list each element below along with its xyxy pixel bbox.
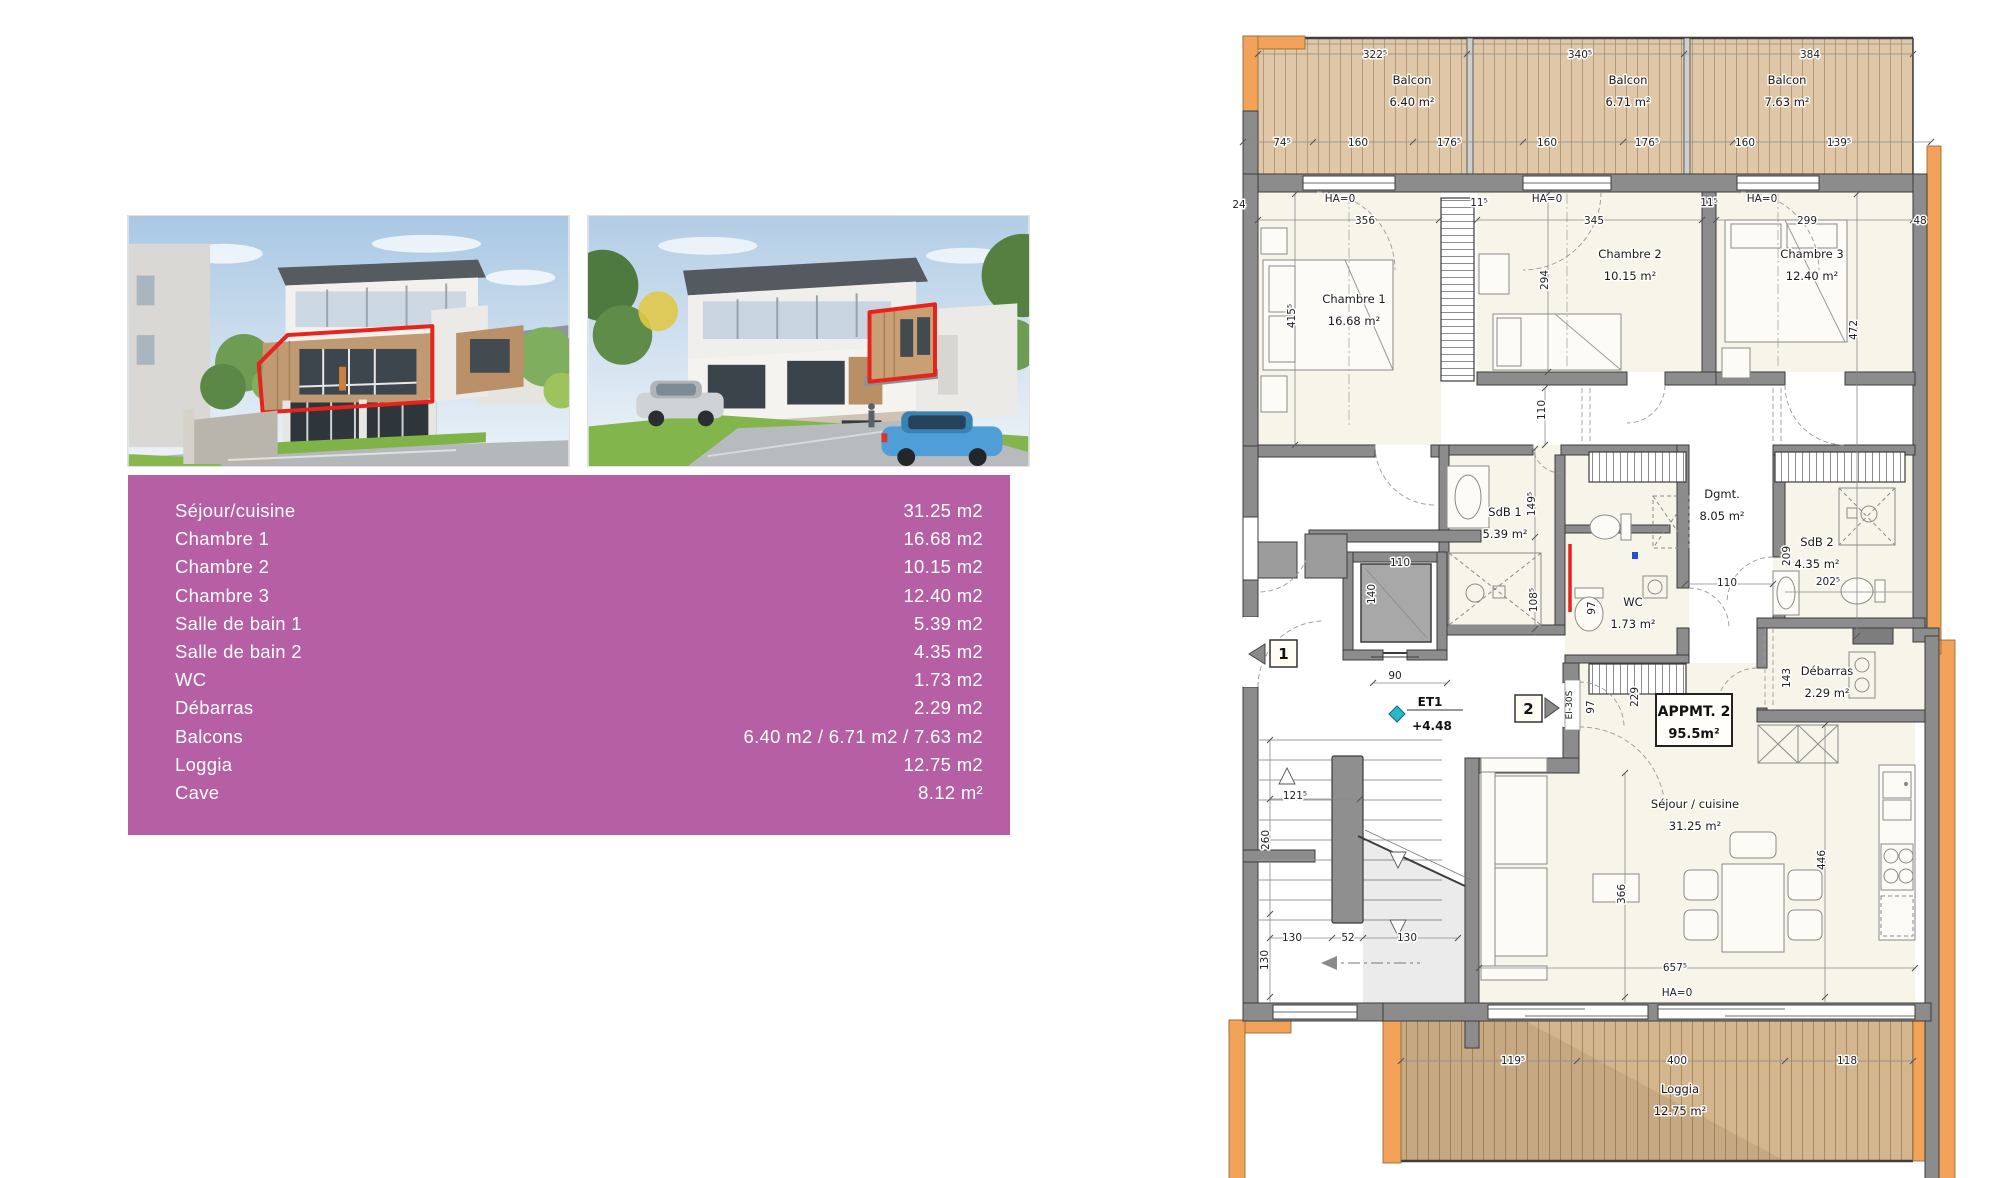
exterior-render-front-art [128,216,569,466]
dimension-label: 149⁵ [1526,492,1538,516]
elevator [1361,564,1431,657]
unit-2-arrow-icon [1545,698,1559,718]
dimension-label: 400 [1667,1055,1687,1067]
room-name: Chambre 1 [1322,292,1385,306]
dimension-label: 229 [1629,687,1641,707]
exterior-render-side-art [588,216,1029,466]
dimension-label: HA=0 [1325,193,1356,205]
dimension-label: 260 [1260,830,1272,850]
room-area-value: 12.40 m2 [903,585,1010,607]
level-marker-label: ET1 [1418,695,1443,709]
dimension-label: 294 [1539,270,1551,290]
table-row: WC1.73 m2 [128,666,1010,694]
dimension-label: 209 [1781,546,1793,566]
room-area-value: 2.29 m2 [914,697,1010,719]
dimension-label: 384 [1800,49,1820,61]
table-row: Cave8.12 m² [128,779,1010,807]
room-area-value: 12.75 m2 [903,754,1010,776]
table-row: Salle de bain 15.39 m2 [128,610,1010,638]
room-area-value: 31.25 m2 [903,500,1010,522]
dimension-label: 110 [1390,557,1410,569]
room-area: 5.39 m² [1482,527,1527,541]
room-label: Séjour/cuisine [128,500,295,522]
dimension-label: 118 [1837,1055,1857,1067]
room-label: Balcons [128,726,243,748]
table-row: Loggia12.75 m2 [128,751,1010,779]
room-area: 4.35 m² [1794,557,1839,571]
dimension-label: 140 [1366,584,1378,604]
room-area: 16.68 m² [1328,314,1380,328]
dimension-label: 130 [1259,950,1271,970]
room-area-value: 1.73 m2 [914,669,1010,691]
table-row: Balcons6.40 m2 / 6.71 m2 / 7.63 m2 [128,723,1010,751]
dimension-label: 52 [1341,932,1354,944]
room-name: Chambre 3 [1780,247,1843,261]
room-area-table: Séjour/cuisine31.25 m2Chambre 116.68 m2C… [128,475,1010,835]
room-label: Cave [128,782,219,804]
dimension-label: 143 [1781,668,1793,688]
dimension-label: 176⁵ [1437,137,1461,149]
stairs [1258,740,1471,1003]
dimension-label: HA=0 [1532,193,1563,205]
dimension-label: 97 [1586,601,1598,614]
unit-2-label: 2 [1523,700,1533,718]
exterior-render-side [587,215,1030,467]
room-area: 12.40 m² [1786,269,1838,283]
room-area-value: 6.40 m2 / 6.71 m2 / 7.63 m2 [744,726,1010,748]
balcony-divider [1467,38,1473,174]
apartment-label: APPMT. 2 95.5m² [1656,694,1732,746]
dimension-label: 121⁵ [1283,790,1307,802]
room-area: 31.25 m² [1669,819,1721,833]
dimension-label: 90 [1388,670,1401,682]
room-area: 12.75 m² [1654,1104,1706,1118]
room-area: 10.15 m² [1604,269,1656,283]
room-area-value: 16.68 m2 [903,528,1010,550]
dimension-label: 11⁵ [1700,197,1718,209]
balcony-divider [1684,38,1690,174]
table-row: Séjour/cuisine31.25 m2 [128,497,1010,525]
room-name: Débarras [1801,664,1854,678]
apartment-area: 95.5m² [1668,727,1719,742]
dimension-label: 345 [1584,215,1604,227]
dimension-label: 108⁵ [1528,588,1540,612]
room-area: 7.63 m² [1764,95,1809,109]
room-name: WC [1623,595,1642,609]
dimension-label: 202⁵ [1816,576,1840,588]
dimension-label: HA=0 [1662,987,1693,999]
dimension-label: 340⁵ [1568,49,1592,61]
floor-plan-drawing: APPMT. 2 95.5m² ET1 +4.48 1 2 EI-30S 322… [1225,8,1995,1178]
dimension-label: HA=0 [1747,193,1778,205]
dimension-label: 415⁵ [1286,304,1298,328]
fire-door-label: EI-30S [1565,690,1575,719]
dimension-label: 24 [1232,199,1246,211]
room-area: 1.73 m² [1610,617,1655,631]
room-name: Séjour / cuisine [1651,797,1739,811]
room-area-value: 8.12 m² [918,782,1010,804]
room-area-value: 5.39 m2 [914,613,1010,635]
table-row: Chambre 312.40 m2 [128,582,1010,610]
room-label: Loggia [128,754,232,776]
floor-plan: APPMT. 2 95.5m² ET1 +4.48 1 2 EI-30S 322… [1225,8,1995,1178]
room-name: Chambre 2 [1598,247,1661,261]
dimension-label: 97 [1585,700,1597,713]
room-name: Loggia [1661,1082,1699,1096]
dimension-label: 48 [1913,215,1926,227]
room-label: Salle de bain 2 [128,641,302,663]
level-marker-value: +4.48 [1412,719,1452,733]
table-row: Débarras2.29 m2 [128,694,1010,722]
room-name: SdB 2 [1800,535,1833,549]
dimension-label: 366 [1616,884,1628,904]
dimension-label: 11⁵ [1470,197,1488,209]
dimension-label: 446 [1816,850,1828,870]
dimension-label: 110 [1536,400,1548,420]
unit-marker-2: 2 EI-30S [1515,680,1580,730]
level-marker: ET1 +4.48 [1389,695,1463,733]
room-label: WC [128,669,206,691]
room-label: Chambre 3 [128,585,269,607]
dimension-label: 322⁵ [1363,49,1387,61]
room-label: Chambre 2 [128,556,269,578]
room-name: SdB 1 [1488,505,1521,519]
room-label: Chambre 1 [128,528,269,550]
dimension-label: 139⁵ [1827,137,1851,149]
room-label: Débarras [128,697,254,719]
exterior-render-front [127,215,570,467]
room-label: Salle de bain 1 [128,613,302,635]
dimension-label: 119⁵ [1501,1055,1525,1067]
dimension-label: 657⁵ [1663,962,1687,974]
room-area: 6.71 m² [1605,95,1650,109]
room-name: Balcon [1609,73,1648,87]
dimension-label: 130 [1397,932,1417,944]
room-area-value: 10.15 m2 [903,556,1010,578]
level-marker-icon [1389,706,1405,722]
dimension-label: 472 [1848,320,1860,340]
room-area: 8.05 m² [1699,509,1744,523]
room-name: Balcon [1768,73,1807,87]
table-row: Chambre 210.15 m2 [128,553,1010,581]
blue-annotation-dot [1632,552,1638,559]
dimension-label: 110 [1717,577,1737,589]
room-name: Balcon [1393,73,1432,87]
apartment-number: APPMT. 2 [1658,704,1731,720]
page: { "colors": { "table_bg": "#b65fa5", "ta… [0,0,2016,1178]
dimension-label: 74⁵ [1273,137,1291,149]
table-row: Salle de bain 24.35 m2 [128,638,1010,666]
dimension-label: 160 [1348,137,1368,149]
dimension-label: 160 [1537,137,1557,149]
dimension-label: 299 [1797,215,1817,227]
room-area-value: 4.35 m2 [914,641,1010,663]
dimension-label: 356 [1355,215,1375,227]
dimension-label: 160 [1735,137,1755,149]
person-figure [868,403,875,427]
room-name: Dgmt. [1704,487,1740,501]
unit-1-label: 1 [1278,645,1288,663]
room-area: 2.29 m² [1804,686,1849,700]
table-row: Chambre 116.68 m2 [128,525,1010,553]
dimension-label: 130 [1282,932,1302,944]
dimension-label: 176⁵ [1635,137,1659,149]
room-area: 6.40 m² [1389,95,1434,109]
